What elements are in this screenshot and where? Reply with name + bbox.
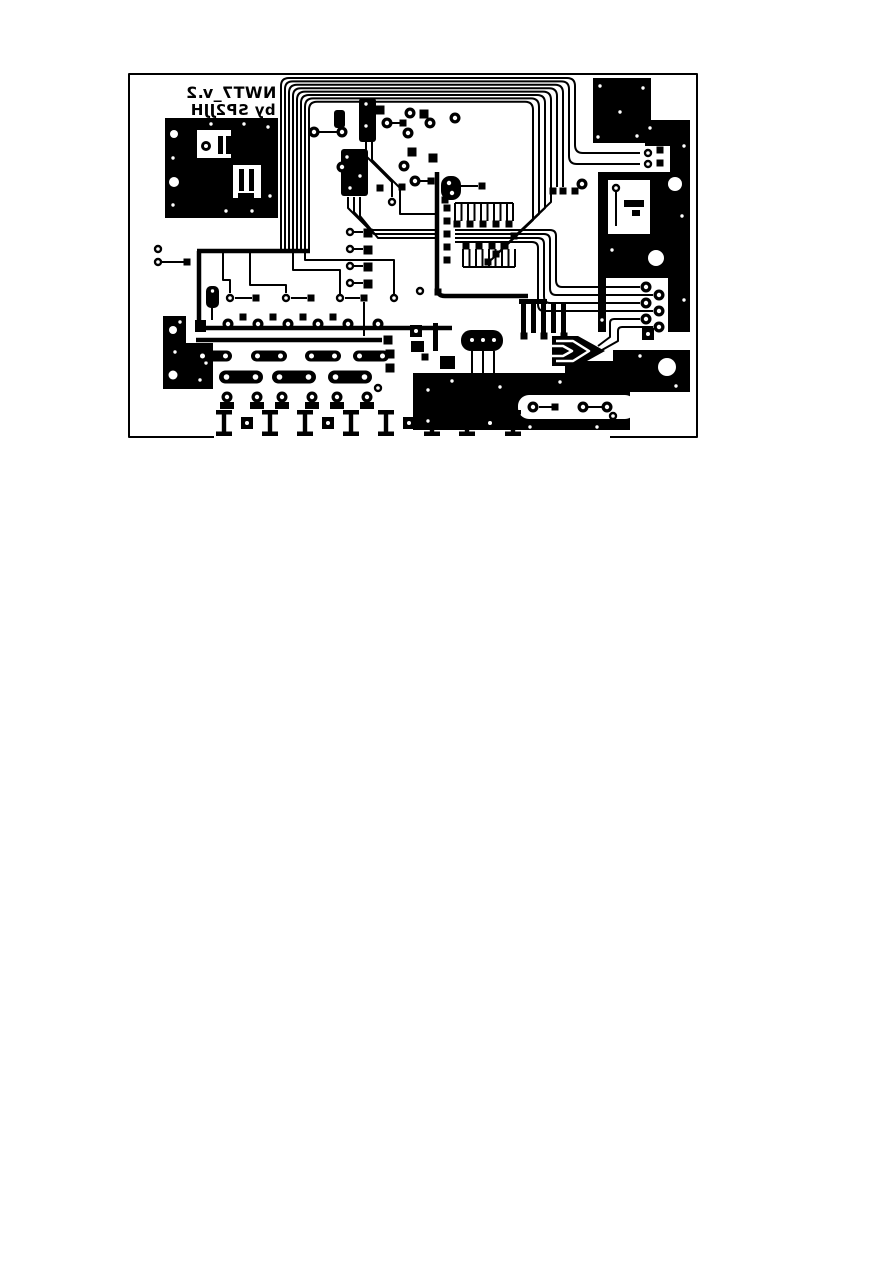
- filter-capsule-row-1: [196, 351, 389, 362]
- trace-merge-chevron: [519, 299, 605, 366]
- silkscreen-line1: NWT7_v.2: [186, 83, 277, 102]
- pad-row-3: [220, 392, 374, 410]
- ground-plane-top-right: [593, 78, 651, 143]
- header-pad-column: [346, 228, 373, 289]
- pcb-artwork: NWT7_v.2 by SP2JJH: [0, 0, 893, 1263]
- silkscreen-line2: by SP2JJH: [190, 101, 275, 119]
- ground-plane-top-left: [165, 118, 278, 218]
- silkscreen-text: NWT7_v.2 by SP2JJH: [186, 83, 277, 119]
- document-page: NWT7_v.2 by SP2JJH: [0, 0, 893, 1263]
- filter-capsule-row-2: [219, 371, 372, 384]
- mount-pads-left: [154, 245, 191, 266]
- copper-layer: NWT7_v.2 by SP2JJH: [129, 74, 697, 437]
- transistor-trio: [461, 330, 503, 373]
